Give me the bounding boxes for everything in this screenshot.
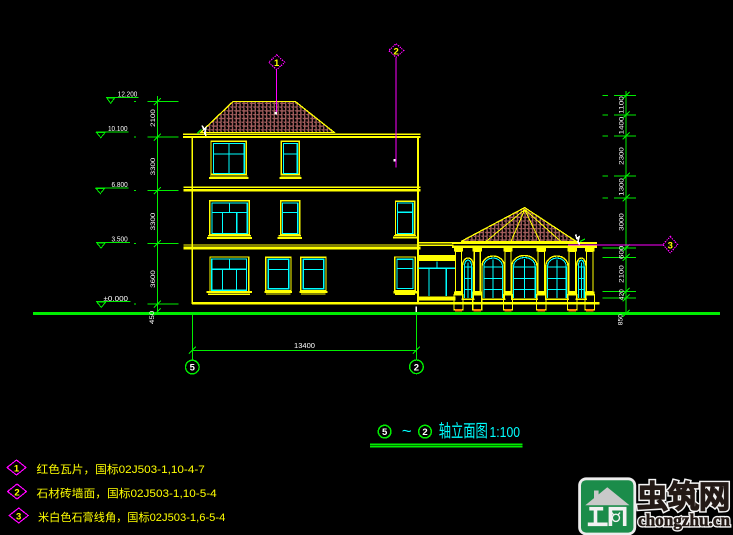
- svg-text:2: 2: [14, 488, 19, 499]
- svg-text:420: 420: [618, 289, 625, 300]
- svg-text:5: 5: [190, 363, 196, 374]
- svg-text:1400: 1400: [618, 116, 625, 134]
- svg-text:3000: 3000: [618, 213, 625, 231]
- svg-text:~: ~: [402, 422, 412, 441]
- svg-text:1:100: 1:100: [490, 425, 521, 441]
- svg-text:红色瓦片，国标02J503-1,10-4-7: 红色瓦片，国标02J503-1,10-4-7: [37, 462, 205, 476]
- svg-text:1: 1: [14, 464, 20, 475]
- svg-text:450: 450: [149, 310, 156, 324]
- svg-text:1100: 1100: [618, 96, 625, 114]
- svg-text:2: 2: [394, 46, 399, 57]
- svg-text:1300: 1300: [618, 178, 625, 196]
- svg-text:3300: 3300: [150, 157, 157, 175]
- svg-text:3300: 3300: [150, 212, 157, 230]
- svg-text:米白色石膏线角，国标02J503-1,6-5-4: 米白色石膏线角，国标02J503-1,6-5-4: [38, 510, 225, 524]
- svg-text:850: 850: [618, 314, 625, 325]
- svg-text:chongzhu.cn: chongzhu.cn: [638, 510, 730, 530]
- svg-text:轴立面图: 轴立面图: [439, 421, 488, 441]
- svg-text:1: 1: [274, 58, 280, 69]
- svg-text:3: 3: [16, 512, 21, 523]
- svg-text:5: 5: [382, 427, 388, 438]
- svg-text:3: 3: [668, 241, 673, 252]
- svg-text:2100: 2100: [618, 265, 625, 283]
- svg-text:2300: 2300: [618, 147, 625, 165]
- svg-text:13400: 13400: [294, 343, 315, 350]
- svg-text:3600: 3600: [150, 270, 157, 288]
- svg-text:2: 2: [422, 427, 427, 438]
- svg-text:2: 2: [414, 362, 419, 373]
- svg-text:600: 600: [618, 245, 625, 259]
- svg-text:2100: 2100: [150, 109, 157, 127]
- svg-text:石材砖墙面，国标02J503-1,10-5-4: 石材砖墙面，国标02J503-1,10-5-4: [37, 486, 217, 500]
